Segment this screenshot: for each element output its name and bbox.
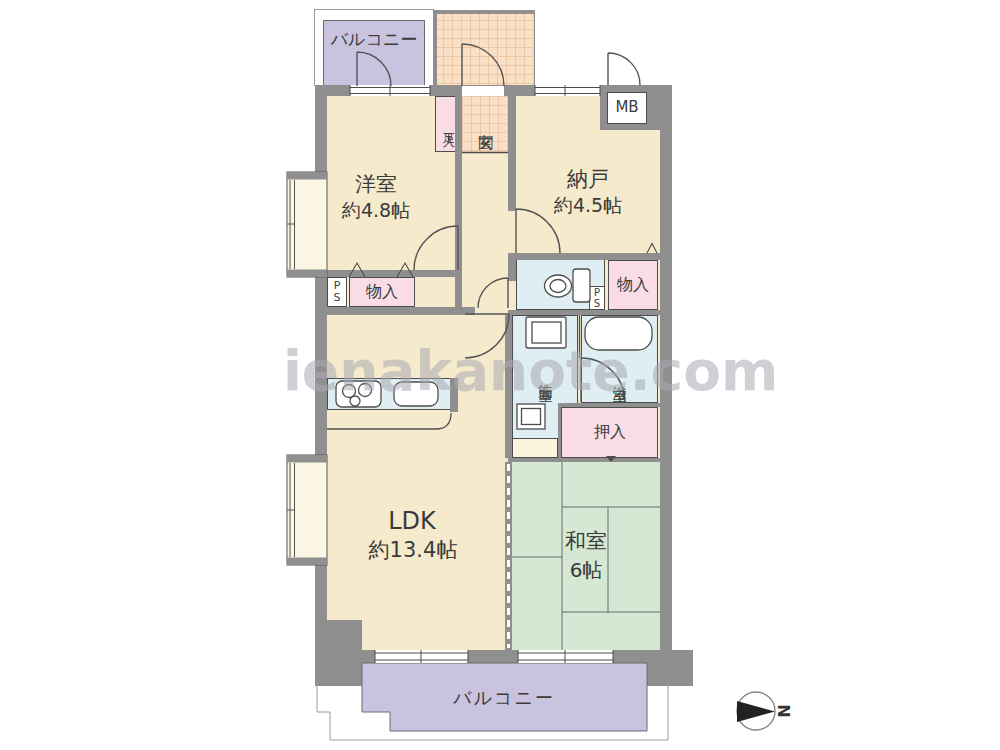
storage-room-name: 納戸 [567,167,609,191]
compass-icon [737,692,775,730]
plan-lines-layer [0,0,1000,750]
bay-window [287,172,327,565]
washbasin-icon [526,317,566,348]
tatami-lines [512,462,660,650]
closet-left-label: 物入 [366,283,398,301]
ldk-name: LDK [388,508,436,536]
tatami-room-name: 和室 [565,529,607,553]
tatami-room-size: 6帖 [570,559,603,582]
western-room-name: 洋室 [355,172,397,196]
meter-box-label: MB [615,99,638,116]
pipe-space-right-label: PS [592,288,602,309]
washing-machine-icon [517,404,545,429]
western-room-size: 約4.8帖 [342,200,410,222]
bathroom-label: 浴室 [612,375,628,379]
toilet-icon [545,269,591,302]
compass-north-label: N [774,704,792,717]
shoe-cabinet-label: 下足入 [441,123,455,126]
stove-icon [336,381,381,407]
floor-plan: バルコニー 下足入 玄関 MB 洋室 約4.8帖 納戸 約4.5帖 PS 物入 … [0,0,1000,750]
closet-right-label: 物入 [617,276,649,294]
genkan-label: 玄関 [476,122,493,126]
balcony-bottom-label: バルコニー [453,688,555,709]
futon-closet-label: 押入 [594,423,626,441]
storage-room-size: 約4.5帖 [554,195,622,217]
washroom-label: 洗面室 [538,373,554,379]
bathtub-icon [585,317,652,350]
ldk-size: 約13.4帖 [369,538,458,562]
pipe-space-left-label: PS [331,280,343,303]
balcony-top-label: バルコニー [331,30,418,50]
kitchen-sink-icon [394,382,438,406]
